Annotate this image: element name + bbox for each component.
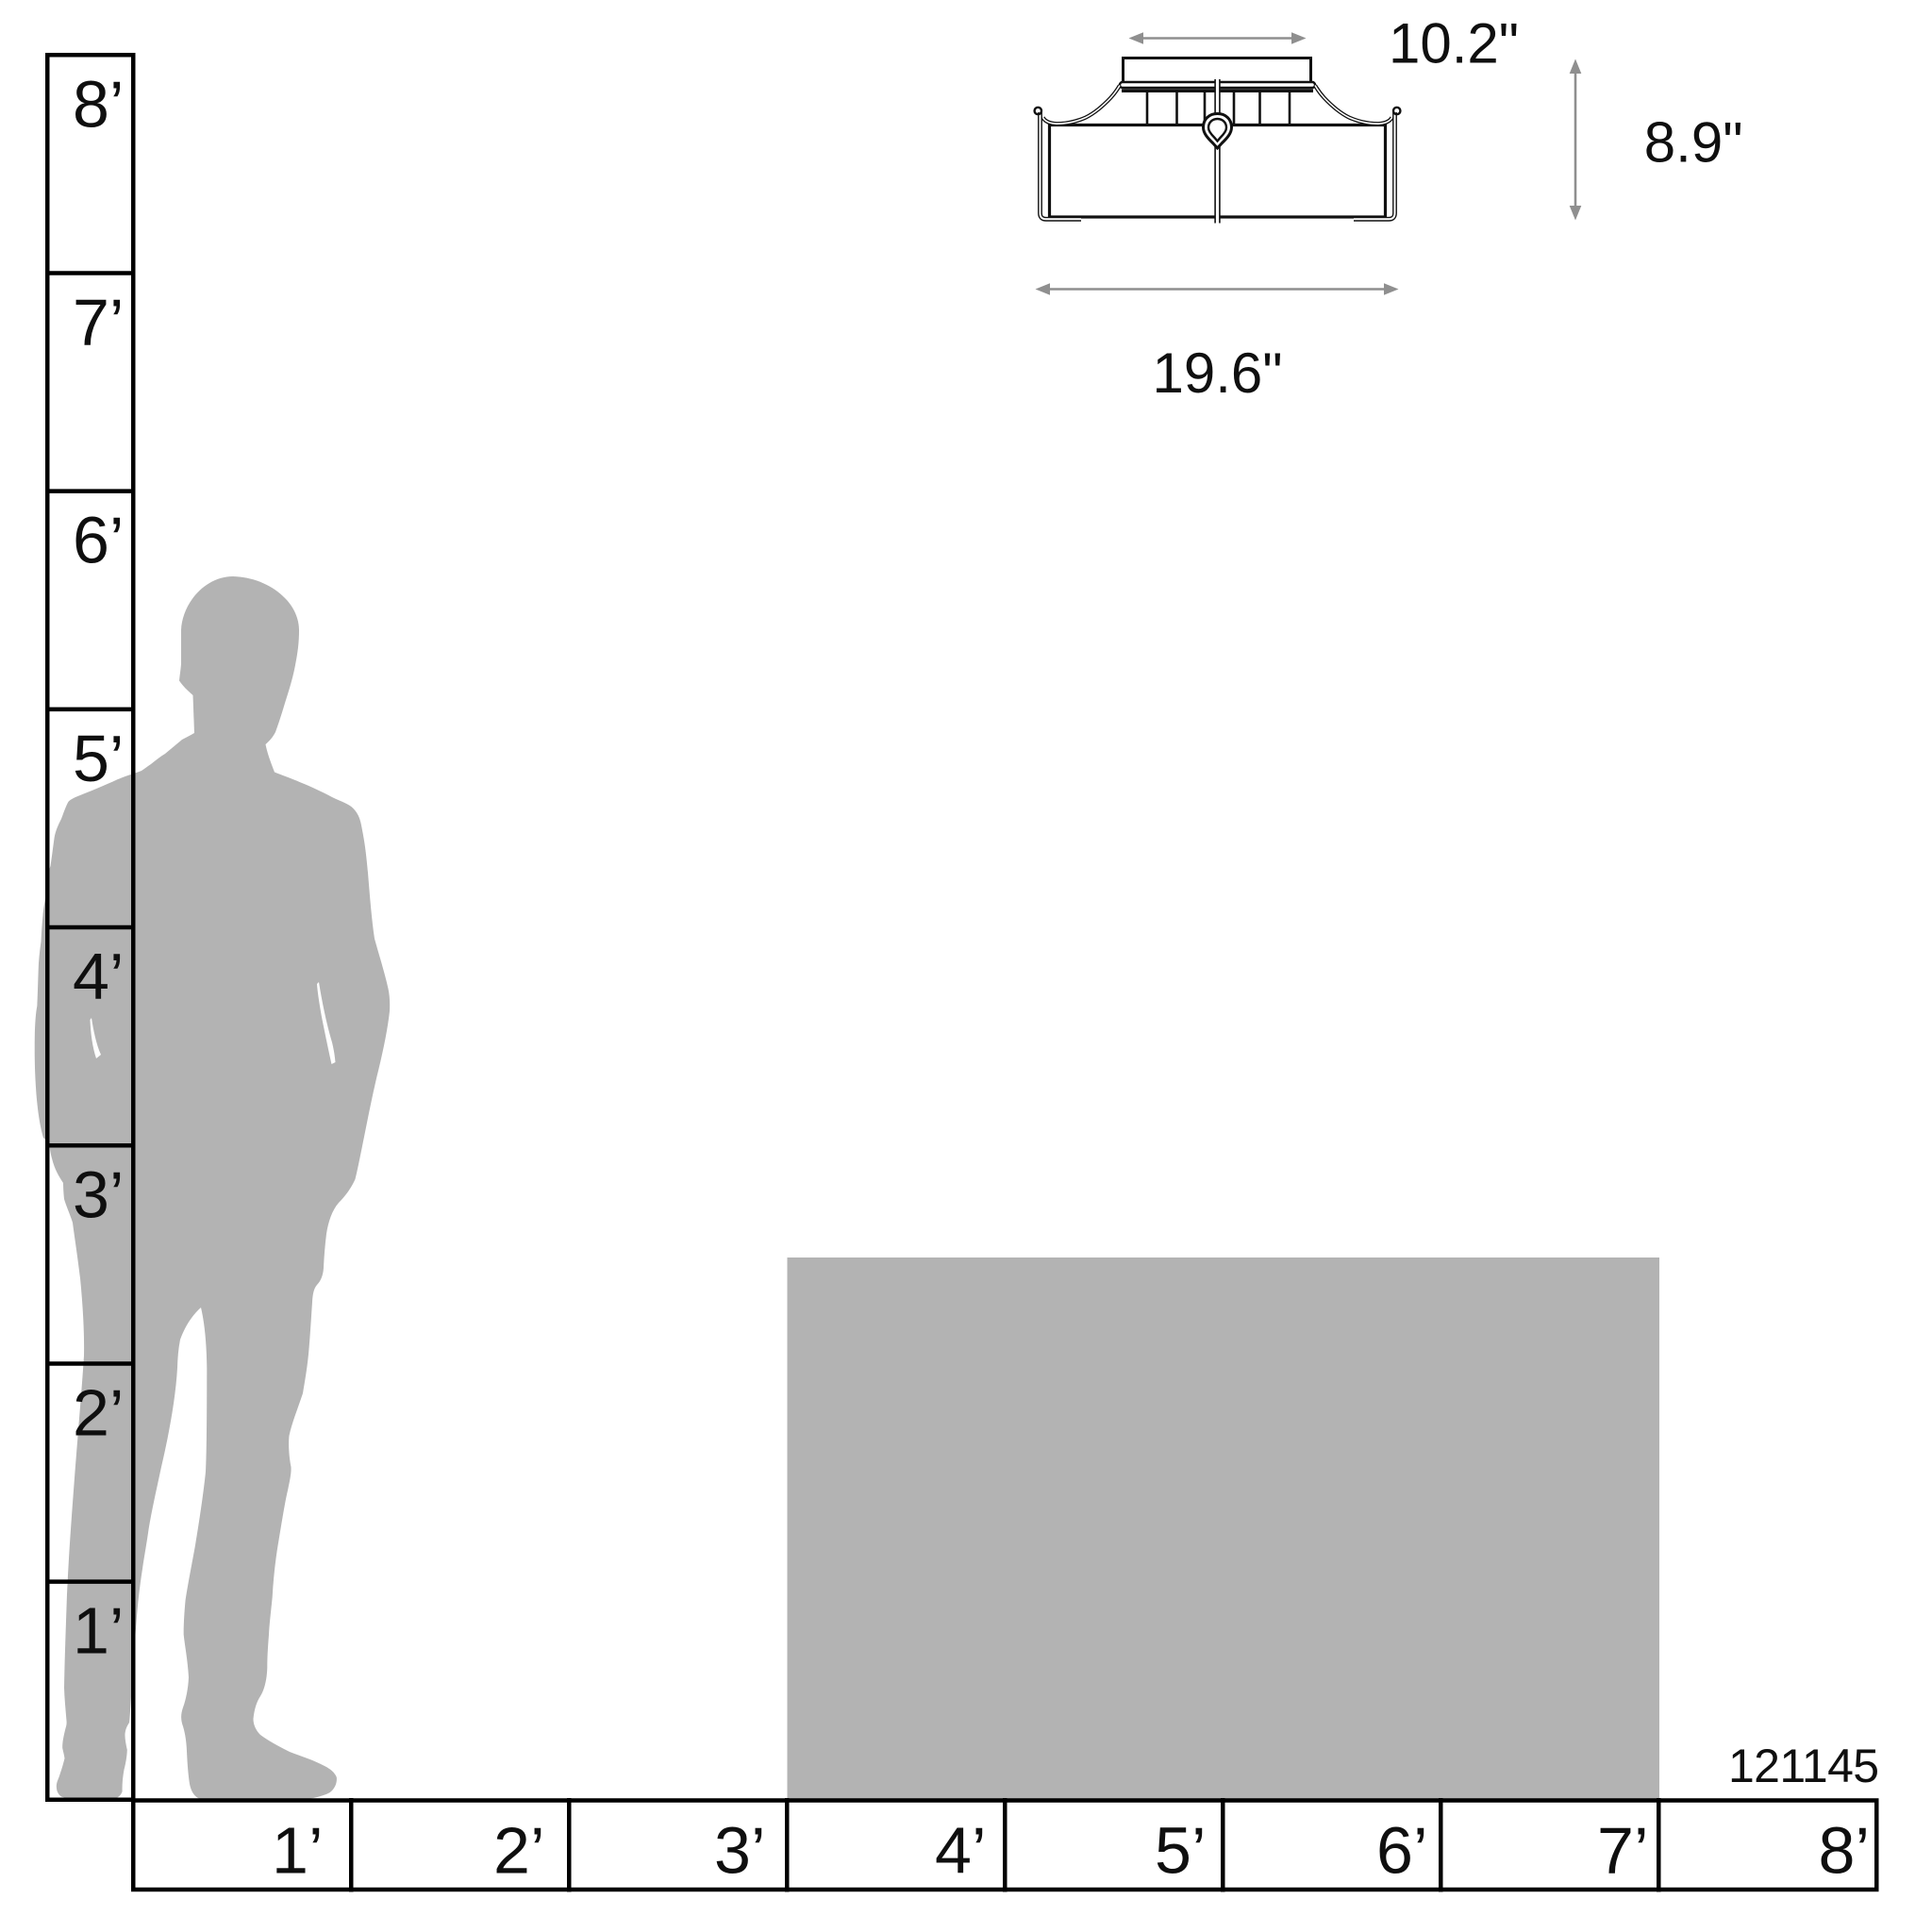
svg-text:1’: 1’ [272, 1814, 323, 1888]
svg-text:5’: 5’ [73, 722, 124, 795]
svg-text:8.9": 8.9" [1644, 111, 1743, 175]
svg-text:121145: 121145 [1728, 1740, 1879, 1792]
svg-text:8’: 8’ [73, 67, 124, 141]
svg-text:7’: 7’ [1597, 1814, 1648, 1888]
svg-text:3’: 3’ [73, 1158, 124, 1231]
svg-text:2’: 2’ [493, 1814, 544, 1888]
svg-text:10.2": 10.2" [1389, 12, 1519, 75]
svg-text:2’: 2’ [73, 1375, 124, 1449]
svg-text:5’: 5’ [1155, 1814, 1206, 1888]
svg-text:6’: 6’ [73, 504, 124, 577]
svg-text:4’: 4’ [935, 1814, 986, 1888]
svg-text:3’: 3’ [714, 1814, 765, 1888]
svg-text:6’: 6’ [1376, 1814, 1427, 1888]
svg-text:8’: 8’ [1819, 1814, 1870, 1888]
svg-text:4’: 4’ [73, 940, 124, 1013]
svg-text:19.6": 19.6" [1152, 341, 1282, 405]
svg-text:7’: 7’ [73, 285, 124, 358]
svg-text:1’: 1’ [73, 1594, 124, 1668]
